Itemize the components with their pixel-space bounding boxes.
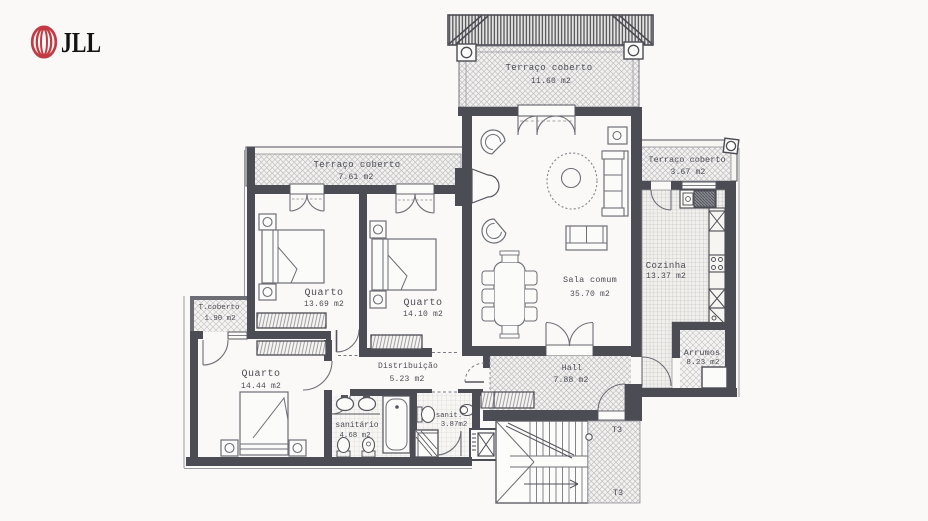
- svg-text:8.23 m2: 8.23 m2: [686, 359, 720, 367]
- svg-text:35.70 m2: 35.70 m2: [570, 290, 610, 299]
- svg-text:14.44 m2: 14.44 m2: [241, 382, 281, 391]
- svg-text:T3: T3: [612, 425, 622, 435]
- svg-text:JLL: JLL: [61, 29, 101, 59]
- svg-text:Quarto: Quarto: [304, 288, 343, 299]
- svg-text:Terraço coberto: Terraço coberto: [313, 160, 400, 170]
- svg-text:Arrumos: Arrumos: [684, 348, 721, 358]
- svg-text:11.60 m2: 11.60 m2: [531, 77, 571, 86]
- svg-text:sanit.: sanit.: [436, 412, 463, 420]
- svg-text:13.69 m2: 13.69 m2: [304, 300, 344, 309]
- svg-text:sanitário: sanitário: [335, 421, 378, 430]
- svg-text:3.87m2: 3.87m2: [441, 421, 468, 429]
- svg-text:Distribuição: Distribuição: [378, 362, 438, 371]
- svg-text:Quarto: Quarto: [403, 298, 442, 309]
- svg-text:Cozinha: Cozinha: [646, 261, 687, 271]
- svg-text:13.37 m2: 13.37 m2: [646, 272, 686, 281]
- svg-text:Terraço coberto: Terraço coberto: [505, 63, 592, 73]
- svg-text:7.61 m2: 7.61 m2: [338, 173, 373, 182]
- svg-text:Terraço coberto: Terraço coberto: [648, 155, 725, 165]
- svg-text:T3: T3: [613, 488, 623, 498]
- svg-text:7.88 m2: 7.88 m2: [553, 376, 588, 385]
- svg-text:14.10 m2: 14.10 m2: [403, 310, 443, 319]
- svg-text:Sala comum: Sala comum: [563, 275, 617, 285]
- svg-text:T.coberto: T.coberto: [198, 304, 239, 312]
- svg-text:3.67 m2: 3.67 m2: [670, 168, 705, 177]
- svg-text:Hall: Hall: [562, 364, 582, 373]
- svg-text:Quarto: Quarto: [241, 369, 280, 380]
- svg-text:5.23 m2: 5.23 m2: [389, 375, 424, 384]
- svg-text:1.90 m2: 1.90 m2: [204, 315, 235, 323]
